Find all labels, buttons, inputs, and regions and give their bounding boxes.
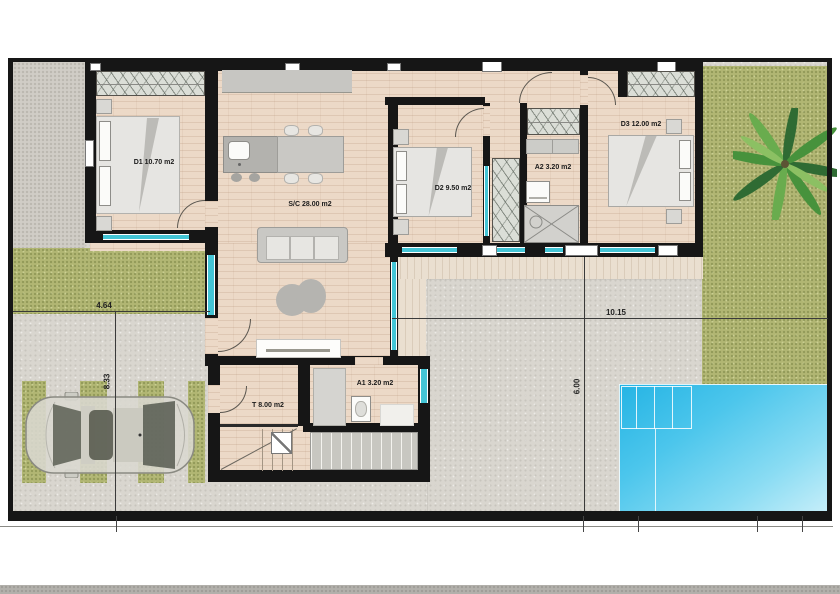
survey-tick bbox=[802, 516, 803, 532]
window-living-west bbox=[207, 255, 215, 315]
sink bbox=[228, 141, 250, 160]
survey-tick bbox=[757, 516, 758, 532]
wall-notch bbox=[85, 140, 94, 167]
pillow bbox=[99, 166, 111, 206]
nightstand bbox=[666, 209, 682, 224]
pool-step-line bbox=[672, 386, 673, 429]
room-label-t: T 8.00 m2 bbox=[223, 401, 313, 410]
wardrobe-rail bbox=[97, 84, 204, 85]
kitchen-counter bbox=[222, 70, 352, 93]
boundary-west bbox=[8, 58, 13, 520]
sofa-cushion bbox=[266, 236, 290, 260]
washing-machine bbox=[526, 181, 550, 203]
stool bbox=[249, 173, 260, 182]
rug bbox=[296, 279, 326, 313]
washer-drawer bbox=[529, 197, 547, 199]
chair bbox=[308, 173, 323, 184]
sofa-cushion bbox=[290, 236, 314, 260]
room-label-d3: D3 12.00 m2 bbox=[596, 120, 686, 129]
slab-joint bbox=[427, 279, 703, 280]
pillow bbox=[396, 184, 407, 214]
wardrobe-rail bbox=[528, 122, 579, 123]
room-label-d2: D2 9.50 m2 bbox=[408, 184, 498, 193]
door-gap-d3 bbox=[580, 75, 588, 105]
wall-notch bbox=[90, 63, 101, 71]
window-sill bbox=[565, 245, 598, 256]
dim-line-right-width bbox=[392, 318, 828, 319]
room-label-sc: S/C 28.00 m2 bbox=[265, 200, 355, 209]
room-label-a2: A2 3.20 m2 bbox=[508, 163, 598, 172]
window-hall bbox=[495, 247, 525, 253]
pillow bbox=[679, 140, 691, 169]
window-d3 bbox=[600, 247, 655, 253]
wardrobe-rail bbox=[628, 84, 694, 85]
room-label-d1: D1 10.70 m2 bbox=[109, 158, 199, 167]
pillow bbox=[99, 121, 111, 161]
window-d2 bbox=[402, 247, 457, 253]
wardrobe-d1 bbox=[96, 71, 205, 96]
glass-wardrobe bbox=[484, 166, 489, 236]
dim-label-right-width: 10.15 bbox=[596, 308, 636, 317]
shower-a1 bbox=[313, 368, 346, 426]
window-a1 bbox=[420, 369, 428, 403]
wall-d3-stub bbox=[618, 71, 627, 97]
door-gap-t bbox=[208, 385, 220, 413]
toilet-bowl bbox=[355, 401, 367, 417]
dim-line-left-height bbox=[115, 311, 116, 511]
window-sill bbox=[658, 245, 678, 256]
pool-step-line bbox=[636, 386, 637, 429]
wall-d2-north bbox=[385, 97, 485, 105]
nightstand bbox=[96, 99, 112, 114]
pool-lane-line bbox=[655, 429, 656, 513]
survey-tick bbox=[116, 516, 117, 532]
door-gap-d2 bbox=[483, 106, 490, 136]
dim-line-left-width bbox=[13, 311, 210, 312]
wardrobe-a2 bbox=[527, 108, 580, 135]
pillow bbox=[396, 151, 407, 181]
wall-wing-south bbox=[208, 470, 430, 482]
wall-wing-west bbox=[208, 356, 220, 482]
door-gap-d1 bbox=[205, 201, 218, 227]
room-label-a1: A1 3.20 m2 bbox=[330, 379, 420, 388]
survey-tick bbox=[638, 516, 639, 532]
dim-label-left-height: 8.33 bbox=[103, 367, 112, 397]
sofa-cushion bbox=[314, 236, 339, 260]
stairs-divider bbox=[220, 424, 298, 427]
entry-notch bbox=[482, 61, 502, 72]
cabinet-divider bbox=[552, 139, 553, 154]
palm-tree bbox=[733, 108, 837, 220]
nightstand bbox=[96, 216, 112, 231]
car bbox=[25, 392, 195, 478]
bath-mat bbox=[380, 404, 414, 426]
shower-cross-icon bbox=[524, 205, 579, 243]
side-path bbox=[13, 62, 85, 248]
nightstand bbox=[393, 129, 409, 145]
door-gap-living bbox=[205, 318, 218, 354]
pergola-deck bbox=[310, 432, 418, 470]
chair bbox=[284, 173, 299, 184]
nightstand bbox=[393, 219, 409, 235]
boundary-east bbox=[827, 58, 832, 520]
pillow bbox=[679, 172, 691, 201]
pool-steps bbox=[621, 386, 692, 429]
stool bbox=[231, 173, 242, 182]
wall-t-a1-divider bbox=[298, 365, 310, 426]
dining-table bbox=[277, 136, 344, 173]
window-d1 bbox=[103, 234, 189, 240]
wall-d1-east bbox=[205, 66, 218, 201]
survey-tick bbox=[583, 516, 584, 532]
pool-step-line bbox=[654, 386, 655, 429]
wall-notch bbox=[387, 63, 401, 71]
dim-line-right-height bbox=[584, 257, 585, 511]
window-living-east bbox=[391, 262, 397, 350]
faucet-dot bbox=[238, 163, 241, 166]
door-gap-a1 bbox=[355, 357, 383, 365]
chair bbox=[308, 125, 323, 136]
stair-tread bbox=[262, 429, 263, 471]
terrace-deck bbox=[393, 257, 703, 279]
dim-label-right-height: 6.00 bbox=[573, 372, 582, 402]
base-line bbox=[0, 526, 833, 527]
wall-east bbox=[695, 62, 703, 257]
window-sill bbox=[482, 245, 497, 256]
window-a2 bbox=[545, 247, 563, 253]
floor-plan-canvas: 4.64 8.33 10.15 6.00 D1 10.70 m2 S/C 28.… bbox=[0, 0, 840, 594]
dim-label-left-width: 4.64 bbox=[84, 301, 124, 310]
boundary-south bbox=[8, 511, 832, 521]
chair bbox=[284, 125, 299, 136]
wardrobe-d3 bbox=[627, 71, 695, 97]
tv-screen bbox=[266, 349, 330, 352]
sheet-edge-strip bbox=[0, 585, 840, 594]
hatch-panel bbox=[271, 432, 292, 454]
boundary-north bbox=[8, 58, 832, 62]
stair-tread bbox=[292, 429, 293, 471]
